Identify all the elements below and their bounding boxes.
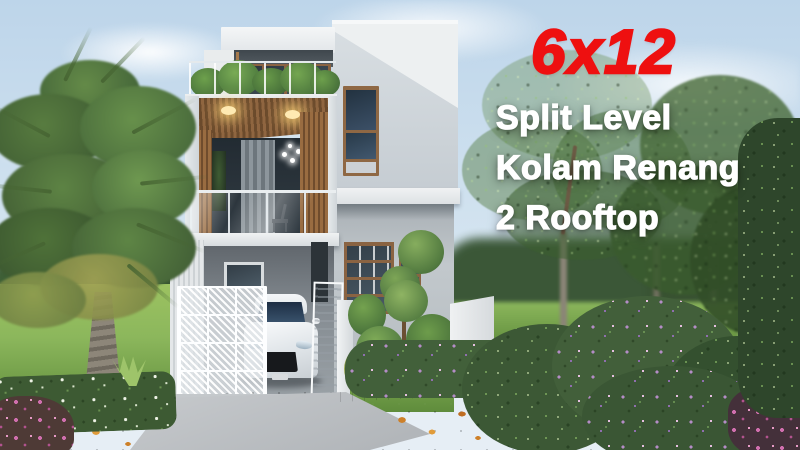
subtitle-line-2: Kolam Renang — [496, 151, 740, 185]
text-overlay: 6x12 Split Level Kolam Renang 2 Rooftop — [0, 0, 800, 450]
headline: 6x12 — [531, 22, 677, 84]
subtitle-line-1: Split Level — [496, 101, 672, 135]
subtitle-line-3: 2 Rooftop — [496, 201, 659, 235]
thumbnail-canvas: 6x12 Split Level Kolam Renang 2 Rooftop — [0, 0, 800, 450]
